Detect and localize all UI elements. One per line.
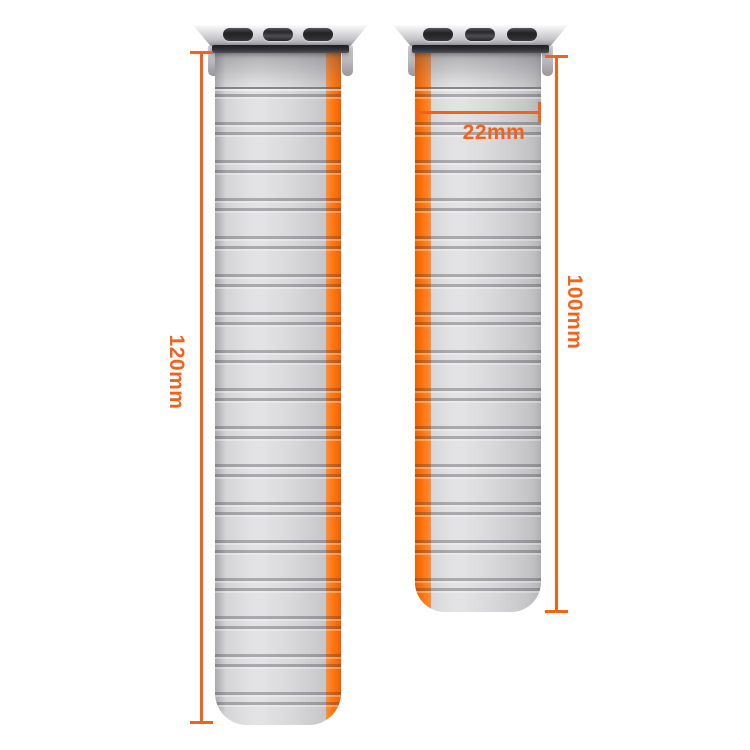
- dimension-tick: [538, 102, 541, 122]
- dimension-label-width: 22mm: [444, 121, 544, 145]
- dimension-tick: [190, 721, 213, 724]
- dimension-line: [555, 57, 558, 611]
- strap-ridges: [215, 89, 341, 725]
- band-dimension-diagram: 120mm 22mm 100mm: [0, 0, 750, 750]
- adapter-channel: [212, 45, 349, 53]
- adapter-slot-icon: [263, 28, 293, 41]
- adapter-slot-icon: [507, 28, 537, 41]
- dimension-label-left-length: 120mm: [164, 322, 188, 422]
- adapter-slot-icon: [423, 28, 453, 41]
- adapter-slot-icon: [465, 28, 495, 41]
- dimension-line: [417, 111, 539, 114]
- dimension-label-right-length: 100mm: [562, 262, 586, 362]
- adapter-slot-icon: [223, 28, 253, 41]
- adapter-slot-icon: [303, 28, 333, 41]
- dimension-tick: [545, 610, 568, 613]
- adapter-channel: [412, 45, 549, 53]
- strap-top-shade: [415, 51, 541, 89]
- strap-body: [215, 51, 341, 725]
- strap-ridges: [415, 89, 541, 612]
- strap-top-shade: [215, 51, 341, 89]
- dimension-line: [200, 53, 203, 722]
